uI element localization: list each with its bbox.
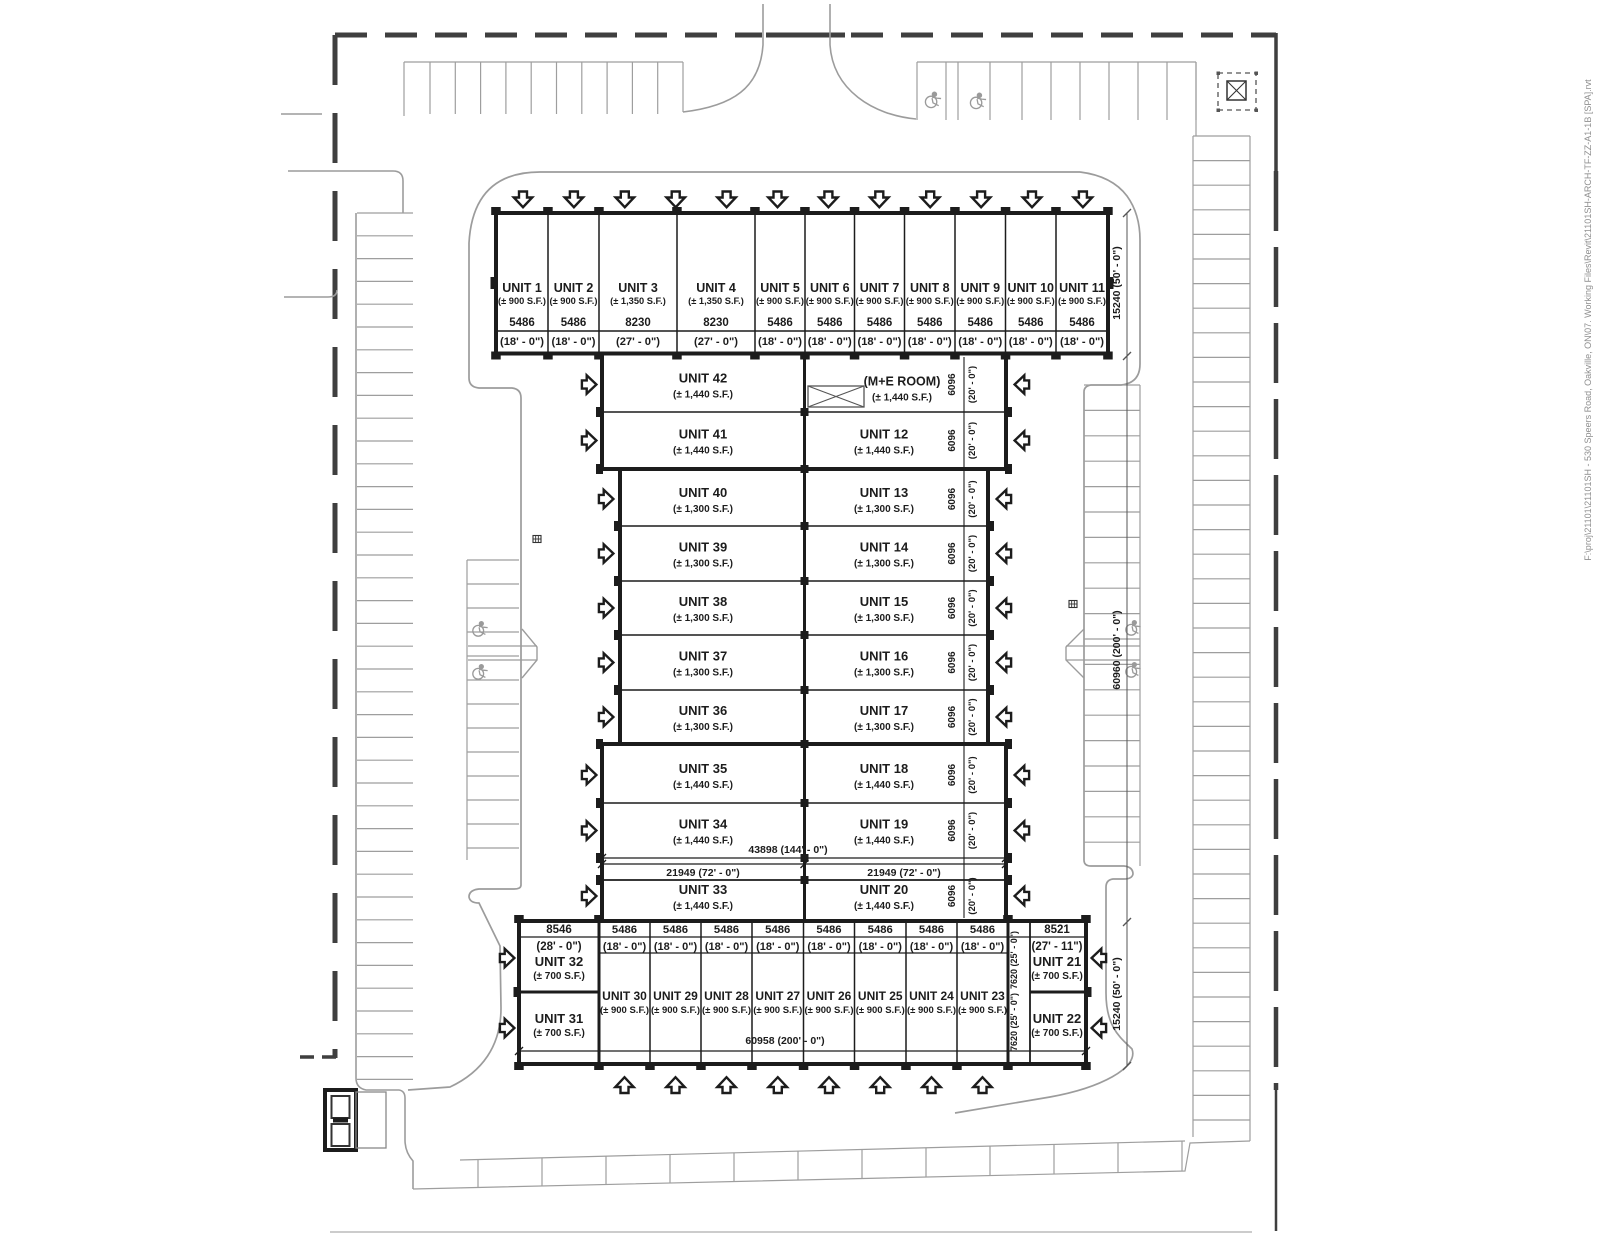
- svg-text:(18' - 0"): (18' - 0"): [500, 336, 544, 348]
- svg-text:F:\proj\21101\21101SH - 530 Sp: F:\proj\21101\21101SH - 530 Speers Road,…: [1583, 79, 1593, 561]
- svg-text:UNIT 23: UNIT 23: [960, 989, 1005, 1003]
- svg-text:(± 1,440 S.F.): (± 1,440 S.F.): [854, 446, 914, 457]
- svg-text:(20' - 0"): (20' - 0"): [967, 589, 978, 626]
- svg-text:(± 1,300 S.F.): (± 1,300 S.F.): [673, 722, 733, 733]
- svg-text:(± 700 S.F.): (± 700 S.F.): [533, 1028, 585, 1039]
- svg-text:(18' - 0"): (18' - 0"): [808, 336, 852, 348]
- svg-text:6096: 6096: [947, 763, 958, 786]
- svg-text:(± 900 S.F.): (± 900 S.F.): [651, 1005, 700, 1016]
- svg-text:6096: 6096: [947, 884, 958, 907]
- svg-text:5486: 5486: [1018, 317, 1044, 329]
- svg-text:5486: 5486: [714, 924, 739, 936]
- svg-text:UNIT 18: UNIT 18: [860, 761, 908, 776]
- svg-text:UNIT 3: UNIT 3: [618, 281, 658, 295]
- svg-text:(18' - 0"): (18' - 0"): [859, 941, 903, 953]
- svg-text:UNIT 27: UNIT 27: [755, 989, 800, 1003]
- svg-text:UNIT 4: UNIT 4: [696, 281, 736, 295]
- svg-text:UNIT 42: UNIT 42: [679, 371, 727, 386]
- svg-text:UNIT 41: UNIT 41: [679, 427, 727, 442]
- svg-text:(± 1,300 S.F.): (± 1,300 S.F.): [673, 504, 733, 515]
- svg-text:UNIT 13: UNIT 13: [860, 485, 908, 500]
- svg-text:60960 (200' - 0"): 60960 (200' - 0"): [1111, 610, 1123, 689]
- svg-text:UNIT 7: UNIT 7: [860, 281, 900, 295]
- svg-text:(± 1,300 S.F.): (± 1,300 S.F.): [854, 613, 914, 624]
- svg-text:(± 1,300 S.F.): (± 1,300 S.F.): [854, 722, 914, 733]
- svg-text:5486: 5486: [561, 317, 587, 329]
- svg-text:(± 900 S.F.): (± 900 S.F.): [856, 296, 904, 306]
- svg-text:15240 (50' - 0"): 15240 (50' - 0"): [1111, 246, 1123, 319]
- svg-text:(± 900 S.F.): (± 900 S.F.): [702, 1005, 751, 1016]
- svg-text:UNIT 22: UNIT 22: [1033, 1011, 1081, 1026]
- svg-text:(18' - 0"): (18' - 0"): [857, 336, 901, 348]
- svg-text:(± 1,440 S.F.): (± 1,440 S.F.): [673, 901, 733, 912]
- svg-text:8230: 8230: [703, 317, 729, 329]
- svg-text:UNIT 12: UNIT 12: [860, 427, 908, 442]
- svg-text:(20' - 0"): (20' - 0"): [967, 812, 978, 849]
- svg-text:5486: 5486: [867, 317, 893, 329]
- svg-text:UNIT 38: UNIT 38: [679, 594, 727, 609]
- svg-text:(± 1,300 S.F.): (± 1,300 S.F.): [854, 559, 914, 570]
- svg-text:5486: 5486: [765, 924, 790, 936]
- svg-text:UNIT 28: UNIT 28: [704, 989, 749, 1003]
- svg-text:(± 1,440 S.F.): (± 1,440 S.F.): [854, 780, 914, 791]
- svg-text:UNIT 31: UNIT 31: [535, 1011, 583, 1026]
- svg-text:(27' - 0"): (27' - 0"): [694, 336, 738, 348]
- svg-text:UNIT 29: UNIT 29: [653, 989, 698, 1003]
- svg-text:(± 1,300 S.F.): (± 1,300 S.F.): [854, 504, 914, 515]
- svg-text:5486: 5486: [967, 317, 993, 329]
- svg-text:15240 (50' - 0"): 15240 (50' - 0"): [1111, 957, 1123, 1030]
- svg-text:UNIT 9: UNIT 9: [960, 281, 1000, 295]
- svg-text:UNIT 6: UNIT 6: [810, 281, 850, 295]
- svg-text:UNIT 16: UNIT 16: [860, 649, 908, 664]
- svg-text:(± 900 S.F.): (± 900 S.F.): [1007, 296, 1055, 306]
- svg-text:(± 900 S.F.): (± 900 S.F.): [600, 1005, 649, 1016]
- svg-text:7620 (25' - 0"): 7620 (25' - 0"): [1009, 993, 1019, 1051]
- svg-text:(18' - 0"): (18' - 0"): [807, 941, 851, 953]
- svg-text:(18' - 0"): (18' - 0"): [961, 941, 1005, 953]
- svg-text:6096: 6096: [947, 487, 958, 510]
- svg-text:UNIT 33: UNIT 33: [679, 882, 727, 897]
- svg-text:(± 1,350 S.F.): (± 1,350 S.F.): [688, 296, 744, 306]
- svg-text:6096: 6096: [947, 596, 958, 619]
- svg-text:(± 900 S.F.): (± 900 S.F.): [856, 1005, 905, 1016]
- svg-text:UNIT 34: UNIT 34: [679, 817, 728, 832]
- svg-text:UNIT 36: UNIT 36: [679, 703, 727, 718]
- svg-text:UNIT 20: UNIT 20: [860, 882, 908, 897]
- svg-text:(20' - 0"): (20' - 0"): [967, 877, 978, 914]
- svg-text:(± 900 S.F.): (± 900 S.F.): [804, 1005, 853, 1016]
- svg-text:(± 1,300 S.F.): (± 1,300 S.F.): [673, 559, 733, 570]
- svg-text:(± 900 S.F.): (± 900 S.F.): [550, 296, 598, 306]
- svg-text:(20' - 0"): (20' - 0"): [967, 480, 978, 517]
- svg-text:(18' - 0"): (18' - 0"): [654, 941, 698, 953]
- svg-text:UNIT 30: UNIT 30: [602, 989, 647, 1003]
- svg-text:(± 1,440 S.F.): (± 1,440 S.F.): [673, 390, 733, 401]
- svg-text:UNIT 19: UNIT 19: [860, 817, 908, 832]
- svg-text:(± 1,350 S.F.): (± 1,350 S.F.): [610, 296, 666, 306]
- svg-text:5486: 5486: [816, 924, 841, 936]
- svg-text:(20' - 0"): (20' - 0"): [967, 422, 978, 459]
- svg-text:6096: 6096: [947, 373, 958, 396]
- svg-text:(M+E ROOM): (M+E ROOM): [864, 375, 941, 389]
- svg-text:(20' - 0"): (20' - 0"): [967, 756, 978, 793]
- svg-text:(18' - 0"): (18' - 0"): [958, 336, 1002, 348]
- svg-text:(27' - 0"): (27' - 0"): [616, 336, 660, 348]
- svg-text:(± 1,300 S.F.): (± 1,300 S.F.): [673, 668, 733, 679]
- svg-text:(± 900 S.F.): (± 900 S.F.): [956, 296, 1004, 306]
- svg-text:6096: 6096: [947, 705, 958, 728]
- svg-text:UNIT 5: UNIT 5: [760, 281, 800, 295]
- svg-text:6096: 6096: [947, 651, 958, 674]
- svg-text:7620 (25' - 0"): 7620 (25' - 0"): [1009, 931, 1019, 989]
- svg-text:5486: 5486: [919, 924, 944, 936]
- svg-text:UNIT 8: UNIT 8: [910, 281, 950, 295]
- svg-text:UNIT 17: UNIT 17: [860, 703, 908, 718]
- svg-text:UNIT 21: UNIT 21: [1033, 954, 1081, 969]
- svg-text:UNIT 10: UNIT 10: [1007, 281, 1054, 295]
- svg-text:(± 900 S.F.): (± 900 S.F.): [958, 1005, 1007, 1016]
- svg-text:UNIT 37: UNIT 37: [679, 649, 727, 664]
- svg-text:(18' - 0"): (18' - 0"): [1009, 336, 1053, 348]
- svg-text:(± 1,440 S.F.): (± 1,440 S.F.): [673, 836, 733, 847]
- svg-text:5486: 5486: [1069, 317, 1095, 329]
- svg-text:(18' - 0"): (18' - 0"): [1060, 336, 1104, 348]
- svg-text:(20' - 0"): (20' - 0"): [967, 644, 978, 681]
- svg-text:(± 700 S.F.): (± 700 S.F.): [533, 971, 585, 982]
- svg-text:(± 900 S.F.): (± 900 S.F.): [1058, 296, 1106, 306]
- svg-text:5486: 5486: [817, 317, 843, 329]
- svg-text:(± 1,440 S.F.): (± 1,440 S.F.): [673, 446, 733, 457]
- svg-text:(± 900 S.F.): (± 900 S.F.): [806, 296, 854, 306]
- svg-text:(18' - 0"): (18' - 0"): [910, 941, 954, 953]
- svg-text:(± 1,440 S.F.): (± 1,440 S.F.): [854, 836, 914, 847]
- svg-text:21949 (72' - 0"): 21949 (72' - 0"): [666, 867, 739, 879]
- svg-text:(20' - 0"): (20' - 0"): [967, 535, 978, 572]
- svg-text:(18' - 0"): (18' - 0"): [705, 941, 749, 953]
- svg-text:UNIT 15: UNIT 15: [860, 594, 908, 609]
- svg-text:UNIT 14: UNIT 14: [860, 540, 909, 555]
- svg-text:21949 (72' - 0"): 21949 (72' - 0"): [867, 867, 940, 879]
- svg-text:UNIT 1: UNIT 1: [502, 281, 542, 295]
- svg-text:(± 1,440 S.F.): (± 1,440 S.F.): [854, 901, 914, 912]
- svg-text:(± 900 S.F.): (± 900 S.F.): [498, 296, 546, 306]
- svg-text:8546: 8546: [546, 924, 572, 936]
- svg-text:5486: 5486: [509, 317, 535, 329]
- svg-text:(± 900 S.F.): (± 900 S.F.): [907, 1005, 956, 1016]
- svg-text:(± 1,440 S.F.): (± 1,440 S.F.): [872, 393, 932, 404]
- svg-text:UNIT 40: UNIT 40: [679, 485, 727, 500]
- svg-text:UNIT 24: UNIT 24: [909, 989, 954, 1003]
- svg-text:UNIT 26: UNIT 26: [807, 989, 852, 1003]
- svg-text:UNIT 35: UNIT 35: [679, 761, 727, 776]
- svg-text:(18' - 0"): (18' - 0"): [756, 941, 800, 953]
- svg-text:(± 900 S.F.): (± 900 S.F.): [756, 296, 804, 306]
- svg-text:UNIT 39: UNIT 39: [679, 540, 727, 555]
- svg-text:6096: 6096: [947, 542, 958, 565]
- svg-text:(20' - 0"): (20' - 0"): [967, 366, 978, 403]
- svg-text:5486: 5486: [612, 924, 637, 936]
- svg-text:5486: 5486: [970, 924, 995, 936]
- svg-text:5486: 5486: [663, 924, 688, 936]
- svg-text:60958 (200' - 0"): 60958 (200' - 0"): [745, 1035, 824, 1047]
- svg-text:(18' - 0"): (18' - 0"): [758, 336, 802, 348]
- svg-text:(± 700 S.F.): (± 700 S.F.): [1031, 971, 1083, 982]
- svg-text:(18' - 0"): (18' - 0"): [603, 941, 647, 953]
- svg-text:UNIT 32: UNIT 32: [535, 954, 583, 969]
- svg-text:6096: 6096: [947, 429, 958, 452]
- svg-text:(27' - 11"): (27' - 11"): [1031, 941, 1082, 953]
- svg-text:5486: 5486: [868, 924, 893, 936]
- svg-text:5486: 5486: [917, 317, 943, 329]
- svg-text:(20' - 0"): (20' - 0"): [967, 698, 978, 735]
- svg-text:8521: 8521: [1044, 924, 1070, 936]
- svg-text:UNIT 2: UNIT 2: [554, 281, 594, 295]
- svg-text:(18' - 0"): (18' - 0"): [551, 336, 595, 348]
- svg-text:43898 (144' - 0"): 43898 (144' - 0"): [748, 844, 827, 856]
- svg-text:(± 1,300 S.F.): (± 1,300 S.F.): [854, 668, 914, 679]
- svg-text:8230: 8230: [625, 317, 651, 329]
- svg-text:(± 1,440 S.F.): (± 1,440 S.F.): [673, 780, 733, 791]
- svg-text:(± 1,300 S.F.): (± 1,300 S.F.): [673, 613, 733, 624]
- svg-text:(28' - 0"): (28' - 0"): [536, 941, 581, 953]
- svg-text:(± 900 S.F.): (± 900 S.F.): [906, 296, 954, 306]
- svg-text:5486: 5486: [767, 317, 793, 329]
- svg-text:6096: 6096: [947, 819, 958, 842]
- svg-text:(± 900 S.F.): (± 900 S.F.): [753, 1005, 802, 1016]
- svg-text:UNIT 11: UNIT 11: [1059, 281, 1105, 295]
- svg-text:(18' - 0"): (18' - 0"): [908, 336, 952, 348]
- svg-text:(± 700 S.F.): (± 700 S.F.): [1031, 1028, 1083, 1039]
- svg-text:UNIT 25: UNIT 25: [858, 989, 903, 1003]
